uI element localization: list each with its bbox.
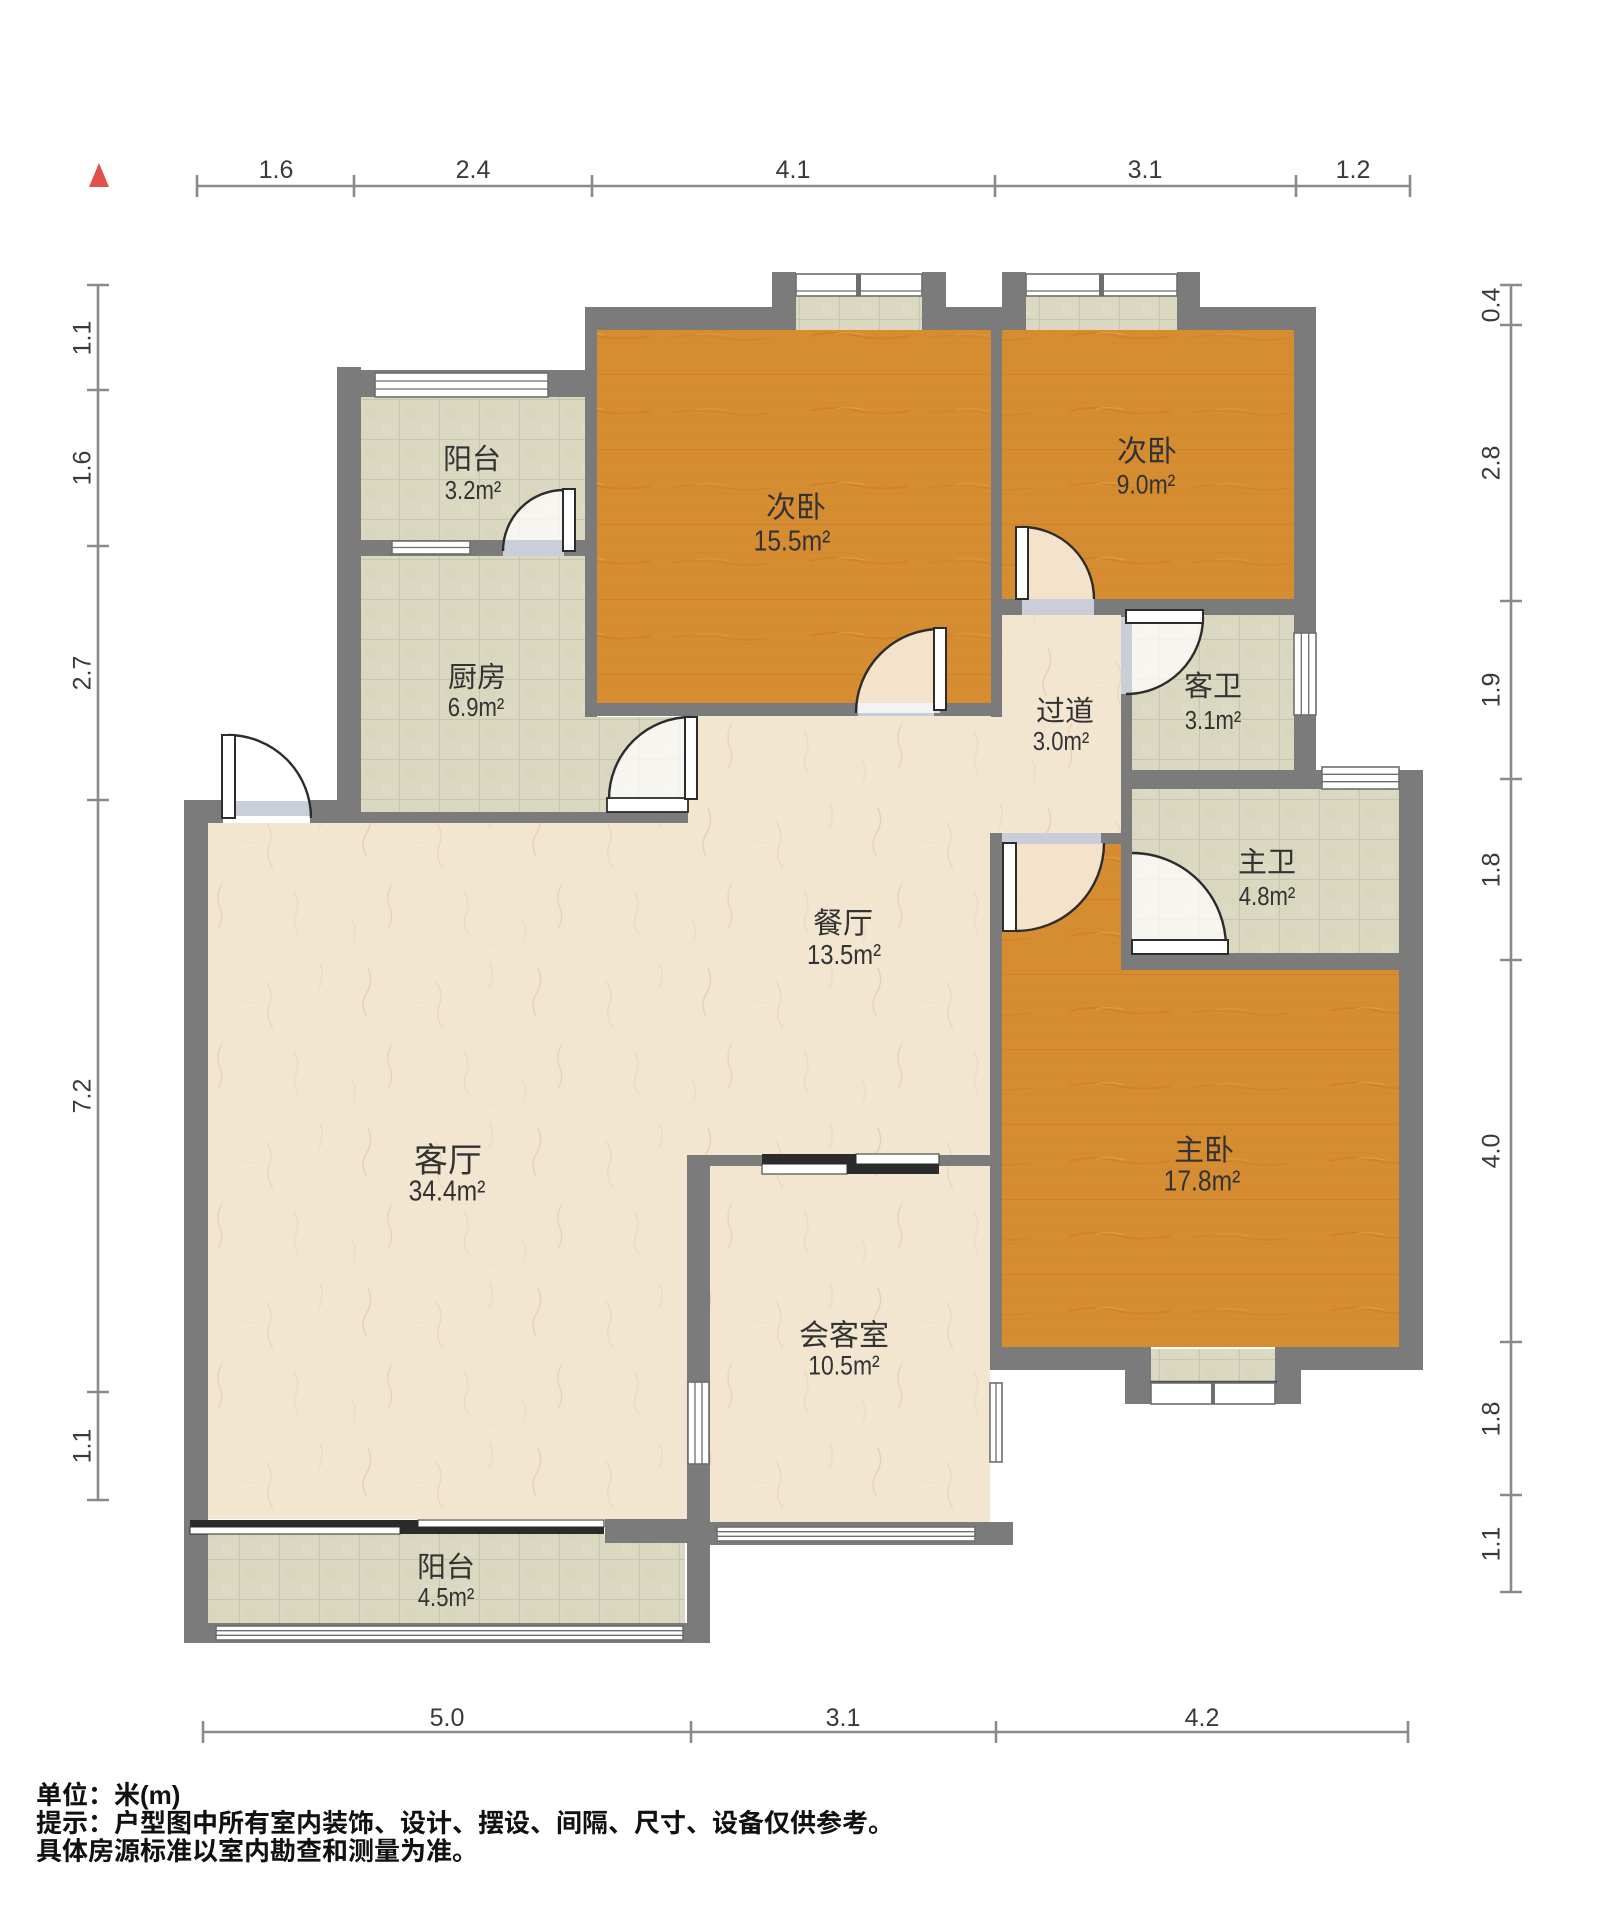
svg-text:5.0: 5.0: [430, 1704, 465, 1732]
svg-text:3.0m²: 3.0m²: [1033, 728, 1089, 757]
svg-text:7.2: 7.2: [69, 1079, 97, 1114]
svg-text:3.1: 3.1: [1128, 156, 1163, 184]
svg-text:13.5m²: 13.5m²: [807, 938, 881, 970]
svg-text:1.6: 1.6: [69, 451, 97, 486]
svg-text:9.0m²: 9.0m²: [1117, 470, 1176, 500]
svg-text:2.7: 2.7: [69, 656, 97, 691]
svg-text:4.2: 4.2: [1185, 1704, 1220, 1732]
svg-text:17.8m²: 17.8m²: [1164, 1164, 1241, 1196]
svg-text:3.1: 3.1: [826, 1704, 861, 1732]
svg-text:0.4: 0.4: [1478, 288, 1506, 323]
svg-text:1.6: 1.6: [259, 156, 294, 184]
svg-text:6.9m²: 6.9m²: [448, 694, 504, 723]
svg-text:4.0: 4.0: [1478, 1134, 1506, 1169]
svg-text:1.1: 1.1: [69, 321, 97, 356]
svg-text:2.8: 2.8: [1478, 446, 1506, 481]
svg-text:3.2m²: 3.2m²: [445, 477, 501, 506]
svg-text:2.4: 2.4: [456, 156, 491, 184]
svg-text:15.5m²: 15.5m²: [754, 524, 831, 556]
svg-text:1.1: 1.1: [69, 1429, 97, 1464]
svg-text:1.9: 1.9: [1478, 673, 1506, 708]
svg-text:1.8: 1.8: [1478, 1402, 1506, 1437]
svg-text:4.5m²: 4.5m²: [418, 1584, 474, 1613]
svg-text:10.5m²: 10.5m²: [808, 1351, 879, 1381]
svg-text:4.1: 4.1: [776, 156, 811, 184]
svg-text:4.8m²: 4.8m²: [1239, 883, 1295, 912]
svg-text:1.2: 1.2: [1336, 156, 1371, 184]
svg-text:1.8: 1.8: [1478, 853, 1506, 888]
svg-text:1.1: 1.1: [1478, 1527, 1506, 1562]
svg-text:(m): (m): [140, 1780, 180, 1810]
svg-text:34.4m²: 34.4m²: [409, 1174, 486, 1206]
svg-text:3.1m²: 3.1m²: [1185, 707, 1241, 736]
